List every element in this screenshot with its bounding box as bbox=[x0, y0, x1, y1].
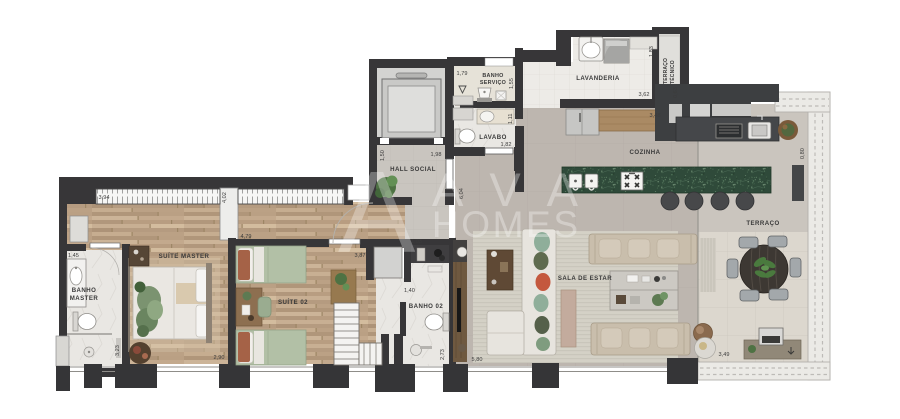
svg-text:BANHO: BANHO bbox=[482, 73, 503, 79]
svg-text:1,83: 1,83 bbox=[649, 46, 655, 57]
svg-text:A: A bbox=[338, 147, 416, 277]
svg-text:TERRAÇO: TERRAÇO bbox=[746, 220, 779, 227]
svg-text:1,11: 1,11 bbox=[508, 114, 514, 124]
svg-text:BANHO 02: BANHO 02 bbox=[409, 303, 444, 310]
svg-text:6,04: 6,04 bbox=[459, 188, 465, 199]
svg-text:3,49: 3,49 bbox=[719, 352, 730, 358]
svg-text:1,45: 1,45 bbox=[68, 253, 79, 259]
svg-text:3,23: 3,23 bbox=[115, 345, 121, 356]
svg-text:1,55: 1,55 bbox=[509, 78, 515, 89]
svg-text:LAVANDERIA: LAVANDERIA bbox=[576, 75, 620, 82]
svg-text:MASTER: MASTER bbox=[70, 295, 99, 302]
svg-text:3,48: 3,48 bbox=[650, 113, 661, 119]
svg-text:2,90: 2,90 bbox=[214, 355, 225, 361]
svg-text:COZINHA: COZINHA bbox=[630, 149, 661, 156]
svg-text:SUÍTE 02: SUÍTE 02 bbox=[278, 298, 308, 306]
svg-text:TERRAÇO: TERRAÇO bbox=[663, 58, 669, 84]
svg-text:5,80: 5,80 bbox=[472, 357, 483, 363]
svg-text:0,80: 0,80 bbox=[800, 148, 806, 159]
svg-text:SERVIÇO: SERVIÇO bbox=[480, 80, 506, 86]
svg-text:1,79: 1,79 bbox=[457, 71, 468, 77]
svg-text:BANHO: BANHO bbox=[72, 287, 97, 294]
svg-text:SALA DE ESTAR: SALA DE ESTAR bbox=[558, 275, 612, 282]
svg-text:SUÍTE MASTER: SUÍTE MASTER bbox=[159, 252, 210, 260]
svg-text:2,73: 2,73 bbox=[440, 349, 446, 360]
svg-text:1,40: 1,40 bbox=[404, 288, 415, 294]
svg-text:0,63: 0,63 bbox=[673, 87, 679, 98]
svg-text:TÉCNICO: TÉCNICO bbox=[668, 60, 676, 84]
svg-text:LAVABO: LAVABO bbox=[479, 134, 507, 141]
svg-text:1,98: 1,98 bbox=[431, 152, 442, 158]
svg-text:1,82: 1,82 bbox=[501, 142, 512, 148]
svg-text:3,62: 3,62 bbox=[639, 92, 650, 98]
svg-text:4,79: 4,79 bbox=[241, 234, 252, 240]
svg-text:HOMES: HOMES bbox=[432, 204, 578, 245]
svg-text:3,94: 3,94 bbox=[99, 195, 110, 201]
svg-text:4,02: 4,02 bbox=[222, 192, 228, 203]
